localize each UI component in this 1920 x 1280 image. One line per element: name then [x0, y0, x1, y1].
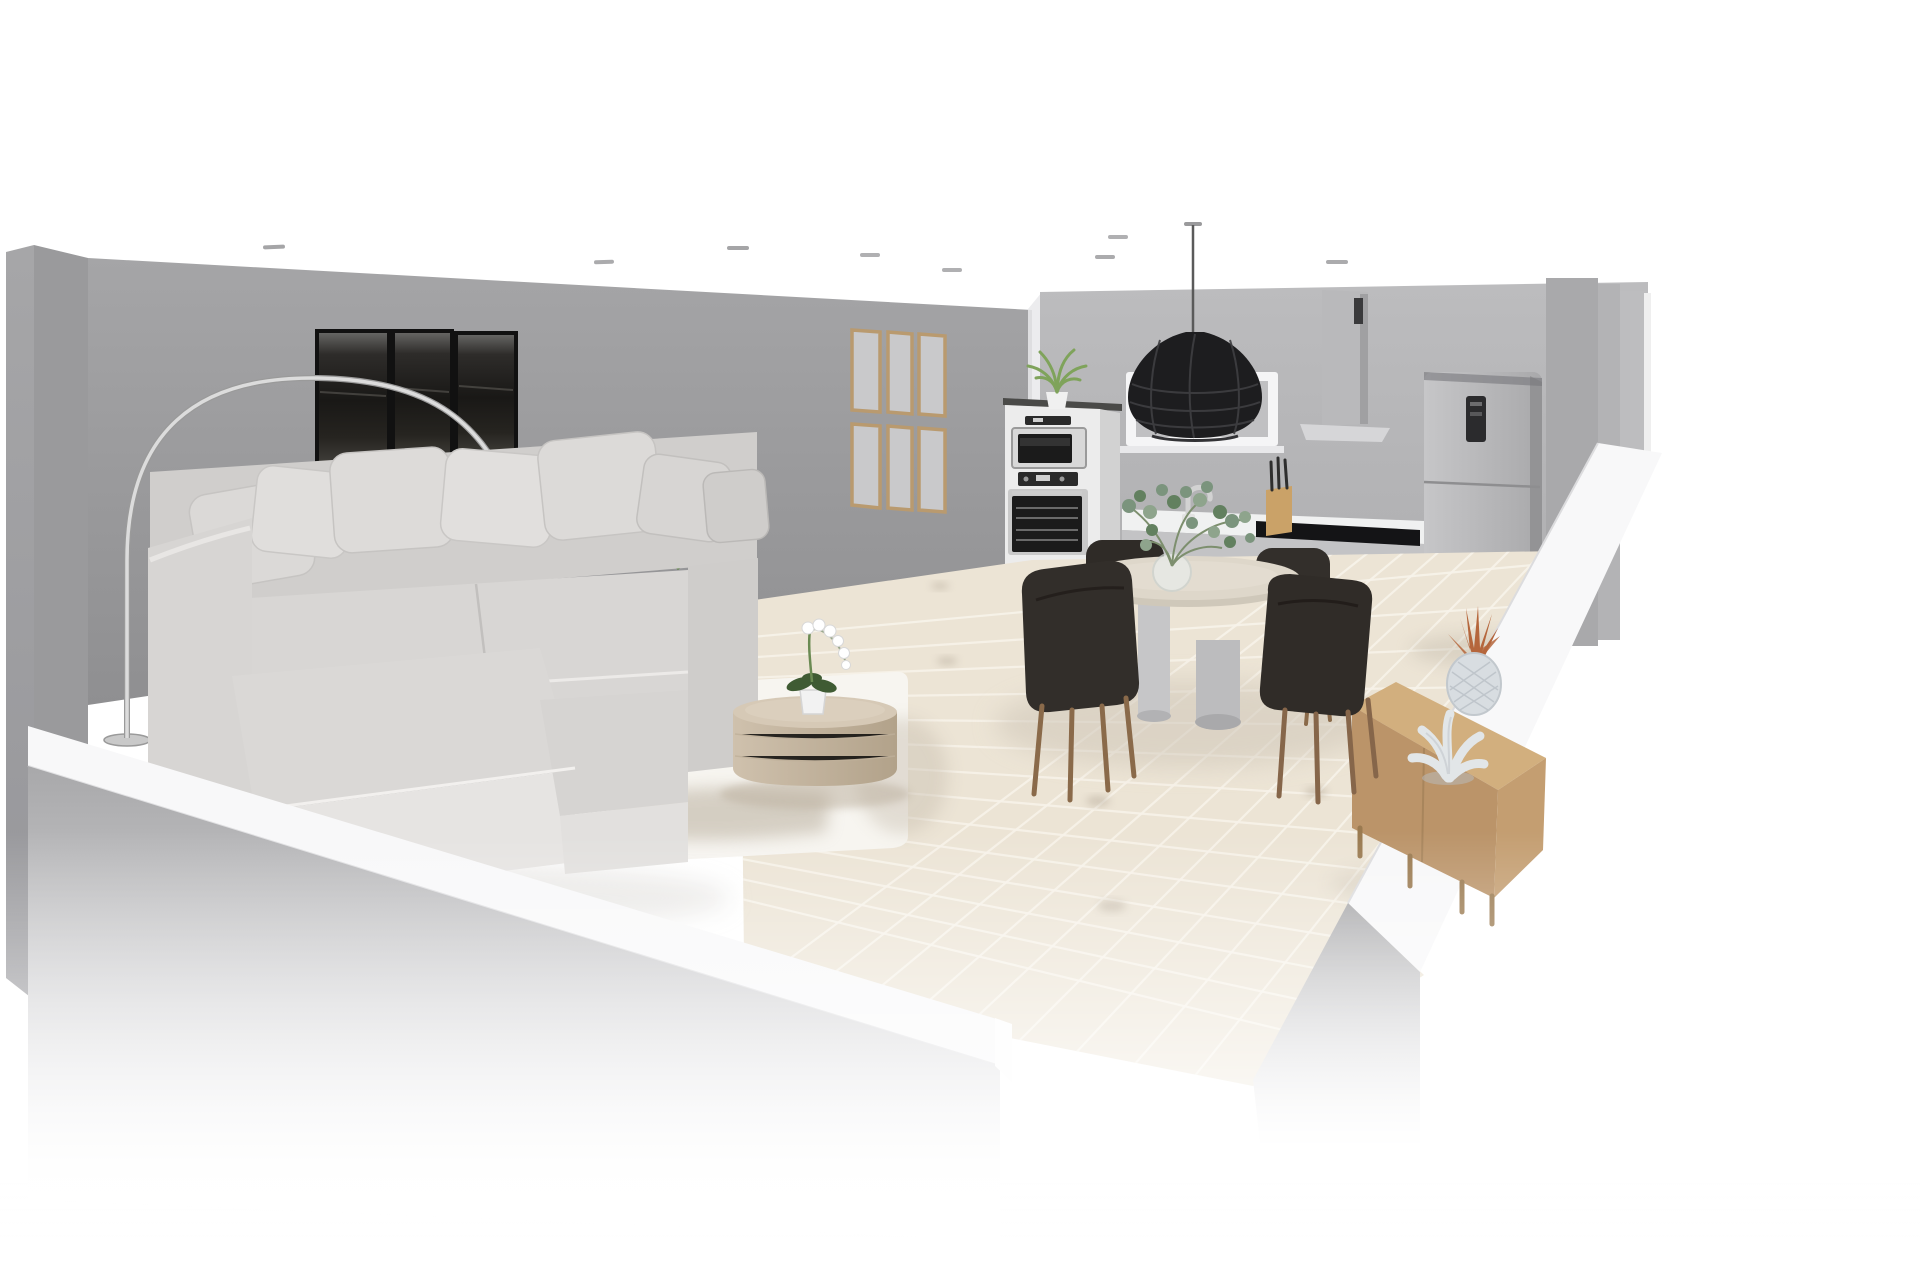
ceiling-spotlight[interactable] — [263, 245, 285, 250]
left-wall[interactable] — [34, 245, 88, 772]
ceiling-spotlight[interactable] — [727, 246, 749, 250]
knife-block[interactable] — [1266, 486, 1292, 536]
ceiling-spotlight[interactable] — [1108, 235, 1128, 239]
ceiling-spotlight[interactable] — [1326, 260, 1348, 264]
fridge-display-text — [1470, 402, 1482, 406]
picture-frame — [888, 332, 912, 414]
ottoman-cushion — [540, 690, 688, 816]
hood-vent-slot — [1354, 298, 1363, 324]
picture-frame — [888, 426, 912, 510]
microwave-control-strip — [1025, 416, 1071, 425]
ceiling-spotlight[interactable] — [942, 268, 962, 272]
table-pedestal-base — [1195, 714, 1241, 730]
table-pedestal — [1138, 598, 1170, 716]
window-sill — [1120, 446, 1284, 453]
orchid-pot — [800, 690, 826, 714]
picture-frame — [919, 428, 945, 512]
microwave-display — [1033, 418, 1043, 422]
picture-frame — [919, 334, 945, 416]
ceiling-spotlight[interactable] — [860, 253, 880, 257]
bottom-margin — [0, 1240, 1920, 1280]
chair-shell — [1022, 561, 1139, 712]
pillow — [702, 468, 770, 543]
picture-frame — [852, 424, 880, 508]
right-wall-panel[interactable] — [1620, 291, 1646, 461]
fridge-side — [1530, 376, 1542, 570]
chair-shell — [1260, 574, 1372, 716]
fridge-display-text — [1470, 412, 1482, 416]
ceiling-spotlight[interactable] — [1095, 255, 1115, 259]
picture-frame — [852, 330, 880, 412]
plant-pot — [1046, 392, 1068, 409]
oven-knob — [1060, 477, 1065, 482]
ceiling-spotlight[interactable] — [594, 260, 614, 265]
pillow — [329, 446, 456, 554]
microwave-window-reflection — [1020, 438, 1070, 446]
table-pedestal-base — [1137, 710, 1171, 722]
oven-door — [1012, 496, 1082, 552]
pineapple-body — [1447, 653, 1501, 715]
render-viewport — [0, 0, 1920, 1280]
right-wall-panel-edge — [1644, 293, 1651, 455]
oven-handle — [1012, 491, 1082, 495]
oven-display — [1036, 475, 1050, 481]
table-pedestal — [1196, 640, 1240, 722]
oven-knob — [1024, 477, 1029, 482]
